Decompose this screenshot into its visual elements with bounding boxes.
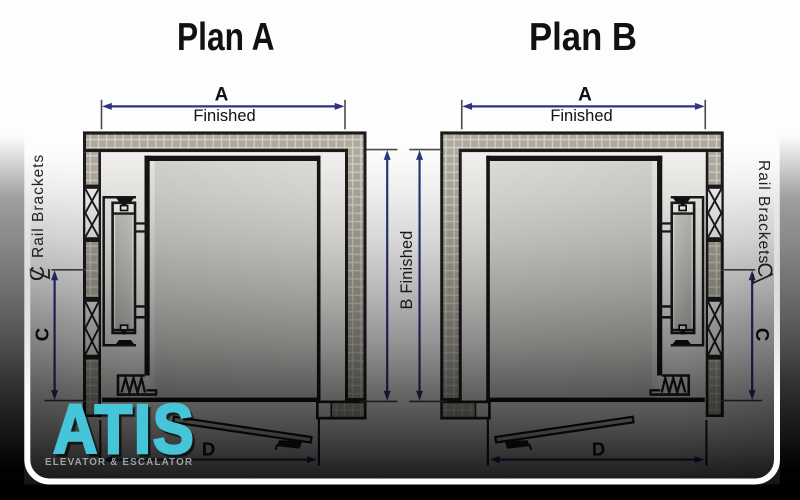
svg-text:ELEVATOR & ESCALATOR: ELEVATOR & ESCALATOR	[45, 457, 193, 468]
